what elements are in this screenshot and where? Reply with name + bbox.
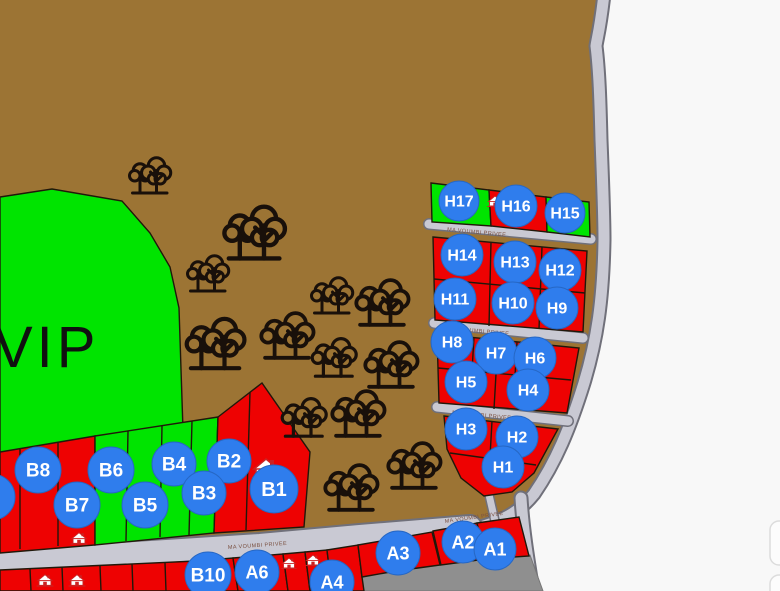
svg-text:H2: H2 (507, 430, 528, 447)
plot-marker-h17[interactable]: H17 (439, 181, 479, 221)
plot-marker-h3[interactable]: H3 (445, 408, 487, 450)
plot-marker-h1[interactable]: H1 (482, 446, 524, 488)
map-controls (770, 521, 780, 591)
plot-marker-a6[interactable]: A6 (235, 550, 279, 591)
plot-marker-a1[interactable]: A1 (474, 528, 516, 570)
plot-marker-b1[interactable]: B1 (250, 465, 298, 513)
svg-text:H15: H15 (550, 206, 579, 223)
map-control-button[interactable] (770, 521, 780, 565)
svg-text:B8: B8 (26, 461, 50, 482)
svg-text:H1: H1 (493, 460, 514, 477)
plot-marker-h14[interactable]: H14 (441, 234, 483, 276)
svg-text:H5: H5 (456, 375, 477, 392)
svg-text:H13: H13 (500, 255, 529, 272)
svg-text:A3: A3 (386, 543, 409, 563)
svg-text:H11: H11 (441, 292, 470, 309)
plot-marker-h15[interactable]: H15 (545, 193, 585, 233)
plot-marker-b7[interactable]: B7 (54, 482, 100, 528)
svg-text:B5: B5 (133, 496, 158, 517)
svg-text:H3: H3 (456, 422, 477, 439)
svg-text:A1: A1 (483, 539, 506, 559)
plot-marker-h9[interactable]: H9 (536, 287, 578, 329)
plot-marker-h13[interactable]: H13 (494, 241, 536, 283)
svg-text:H17: H17 (444, 194, 473, 211)
svg-text:B10: B10 (191, 566, 226, 587)
plot-marker-b6[interactable]: B6 (88, 447, 134, 493)
svg-text:H12: H12 (545, 263, 574, 280)
plot-marker-h8[interactable]: H8 (431, 321, 473, 363)
svg-text:B7: B7 (65, 496, 89, 517)
svg-text:B4: B4 (162, 455, 187, 476)
svg-text:H9: H9 (547, 301, 568, 318)
plot-map: MA VOUMBI PRIVEE MA VOUMBI PRIVEE MA VOU… (0, 0, 780, 591)
plot-marker-b8[interactable]: B8 (15, 447, 61, 493)
vip-region-label: VIP (0, 315, 100, 380)
svg-text:H7: H7 (486, 346, 507, 363)
svg-text:A4: A4 (320, 572, 343, 591)
svg-text:H6: H6 (525, 351, 546, 368)
svg-text:H14: H14 (447, 248, 476, 265)
svg-text:B1: B1 (261, 479, 287, 501)
svg-text:A6: A6 (245, 562, 268, 582)
plot-marker-h11[interactable]: H11 (434, 278, 476, 320)
svg-text:A2: A2 (451, 532, 474, 552)
plot-marker-b3[interactable]: B3 (182, 471, 226, 515)
plot-marker-h4[interactable]: H4 (507, 369, 549, 411)
svg-text:B6: B6 (99, 461, 123, 482)
svg-text:H8: H8 (442, 335, 463, 352)
plot-marker-h10[interactable]: H10 (492, 282, 534, 324)
svg-text:H10: H10 (498, 296, 527, 313)
plot-marker-h5[interactable]: H5 (445, 361, 487, 403)
svg-text:B3: B3 (192, 484, 216, 505)
plot-marker-h12[interactable]: H12 (539, 249, 581, 291)
svg-text:B2: B2 (217, 452, 241, 473)
plot-marker-b5[interactable]: B5 (122, 482, 168, 528)
svg-text:H16: H16 (501, 199, 530, 216)
svg-text:H4: H4 (518, 383, 539, 400)
plot-marker-h16[interactable]: H16 (495, 185, 537, 227)
plot-marker-a3[interactable]: A3 (376, 531, 420, 575)
